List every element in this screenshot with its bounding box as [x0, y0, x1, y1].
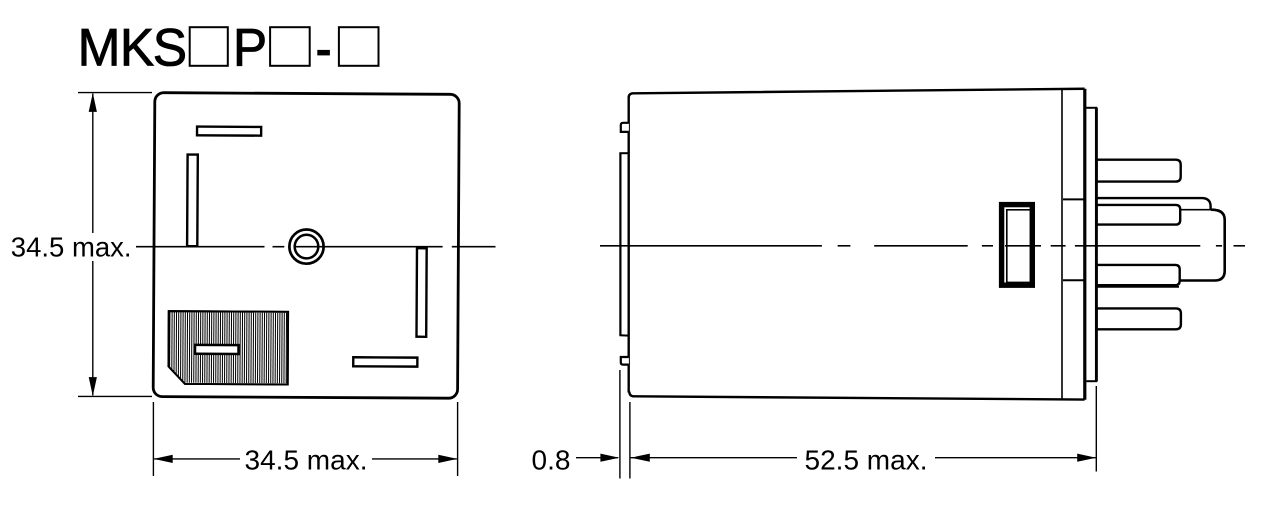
svg-text:0.8: 0.8 [532, 444, 571, 475]
svg-text:34.5 max.: 34.5 max. [245, 445, 368, 476]
svg-text:P: P [233, 19, 267, 78]
svg-text:S: S [153, 19, 187, 78]
svg-text:34.5 max.: 34.5 max. [11, 232, 132, 263]
svg-text:M: M [78, 19, 121, 78]
svg-text:K: K [120, 19, 154, 78]
svg-text:52.5 max.: 52.5 max. [805, 444, 928, 475]
